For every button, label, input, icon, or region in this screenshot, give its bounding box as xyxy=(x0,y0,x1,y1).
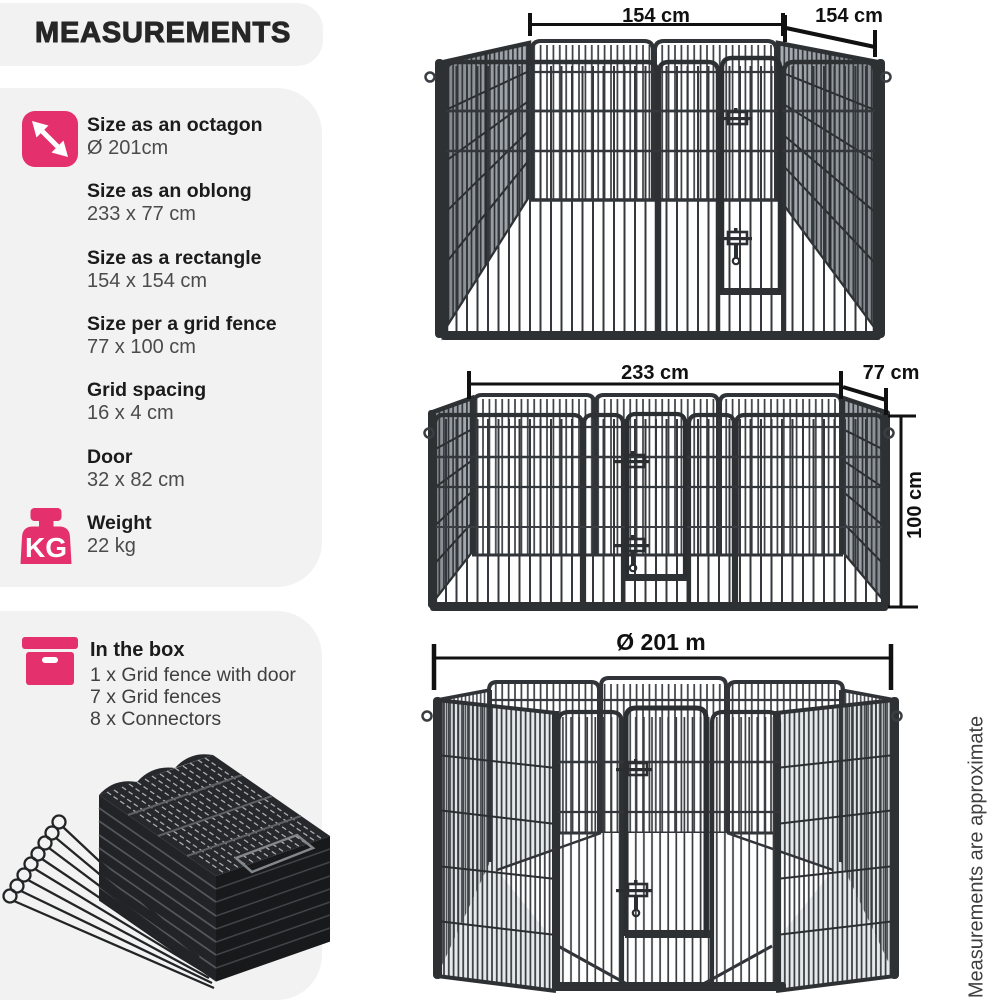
svg-text:233 cm: 233 cm xyxy=(621,362,689,384)
svg-text:Ø 201 m: Ø 201 m xyxy=(616,629,706,655)
svg-text:154 cm: 154 cm xyxy=(815,5,883,27)
svg-text:154 cm: 154 cm xyxy=(622,5,690,27)
svg-text:100 cm: 100 cm xyxy=(904,471,926,539)
svg-text:77 cm: 77 cm xyxy=(863,362,920,384)
